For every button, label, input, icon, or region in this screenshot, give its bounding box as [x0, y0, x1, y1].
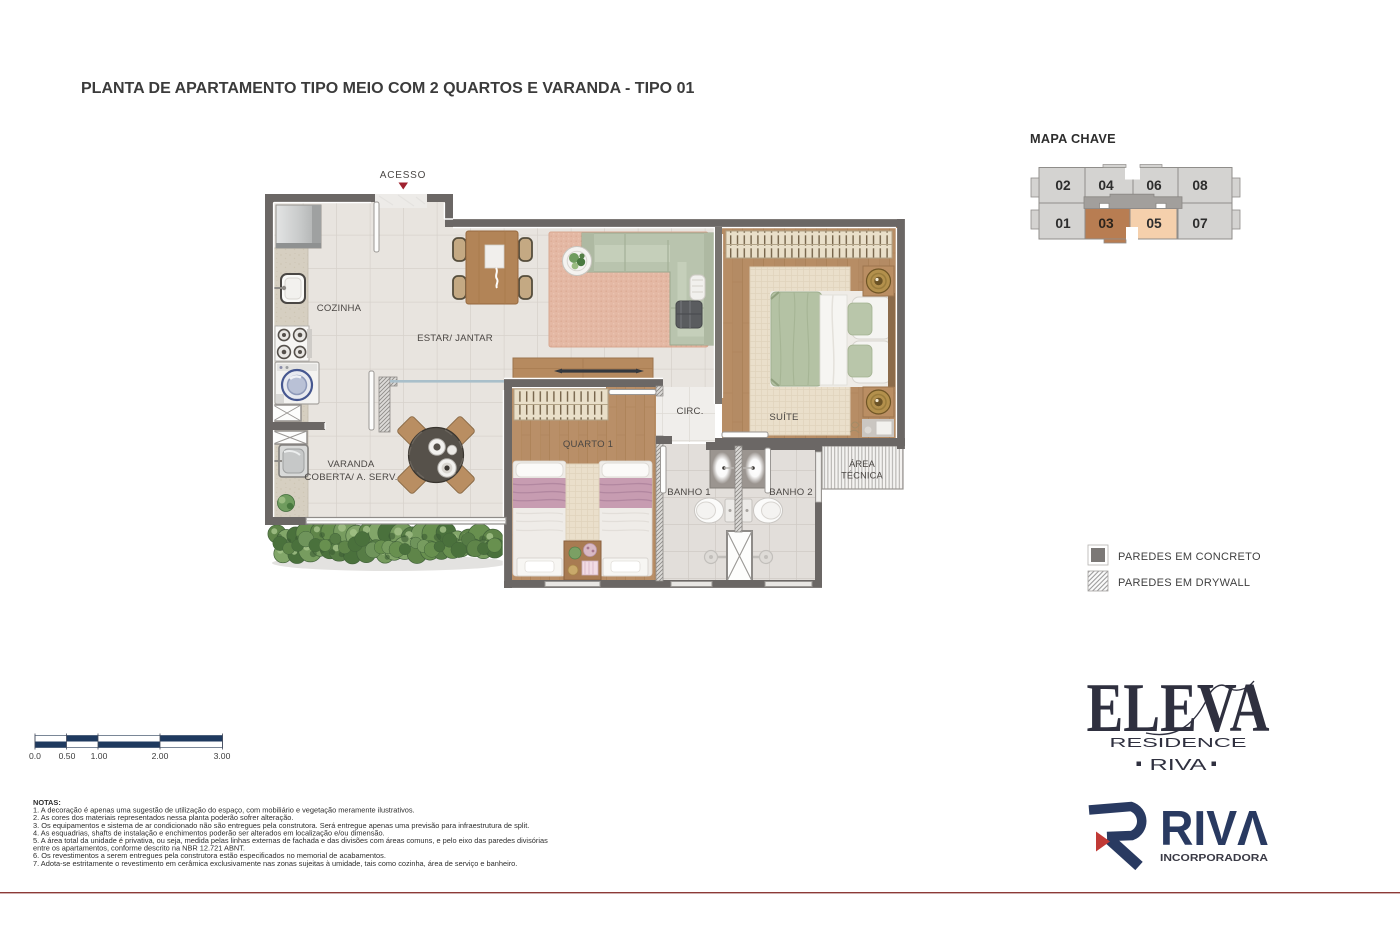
svg-text:ESTAR/ JANTAR: ESTAR/ JANTAR	[417, 333, 493, 344]
svg-text:SUÍTE: SUÍTE	[769, 412, 798, 423]
svg-text:01: 01	[1055, 216, 1071, 231]
svg-text:06: 06	[1146, 178, 1162, 193]
svg-text:1.00: 1.00	[91, 751, 108, 761]
svg-text:COBERTA/ A. SERV.: COBERTA/ A. SERV.	[304, 472, 397, 483]
svg-text:05: 05	[1146, 216, 1162, 231]
svg-text:PLANTA DE APARTAMENTO TIPO MEI: PLANTA DE APARTAMENTO TIPO MEIO COM 2 QU…	[81, 80, 694, 97]
svg-text:08: 08	[1192, 178, 1208, 193]
svg-text:03: 03	[1098, 216, 1114, 231]
svg-text:CIRC.: CIRC.	[676, 406, 703, 417]
svg-text:INCORPORADORA: INCORPORADORA	[1160, 853, 1268, 864]
svg-text:PAREDES EM CONCRETO: PAREDES EM CONCRETO	[1118, 551, 1261, 563]
svg-text:MAPA CHAVE: MAPA CHAVE	[1030, 132, 1116, 146]
svg-text:QUARTO 1: QUARTO 1	[563, 439, 613, 450]
svg-text:RESIDENCE: RESIDENCE	[1110, 736, 1247, 750]
svg-text:ACESSO: ACESSO	[380, 170, 426, 181]
svg-text:RIVΛ: RIVΛ	[1160, 802, 1268, 856]
svg-text:TÉCNICA: TÉCNICA	[841, 471, 883, 481]
svg-text:04: 04	[1098, 178, 1114, 193]
svg-text:0.0: 0.0	[29, 751, 41, 761]
svg-text:0.50: 0.50	[59, 751, 76, 761]
svg-text:7. Adota-se estritamente o rev: 7. Adota-se estritamente o revestimento …	[33, 859, 517, 868]
svg-text:3.00: 3.00	[214, 751, 231, 761]
svg-text:BANHO 1: BANHO 1	[667, 487, 711, 498]
svg-text:2.00: 2.00	[152, 751, 169, 761]
svg-text:VARANDA: VARANDA	[327, 459, 374, 470]
svg-text:COZINHA: COZINHA	[317, 303, 362, 314]
svg-text:PAREDES EM DRYWALL: PAREDES EM DRYWALL	[1118, 577, 1250, 589]
svg-text:07: 07	[1192, 216, 1208, 231]
svg-text:ÁREA: ÁREA	[849, 459, 875, 469]
svg-text:BANHO 2: BANHO 2	[769, 487, 813, 498]
svg-text:RIVA: RIVA	[1150, 757, 1208, 774]
svg-text:02: 02	[1055, 178, 1071, 193]
